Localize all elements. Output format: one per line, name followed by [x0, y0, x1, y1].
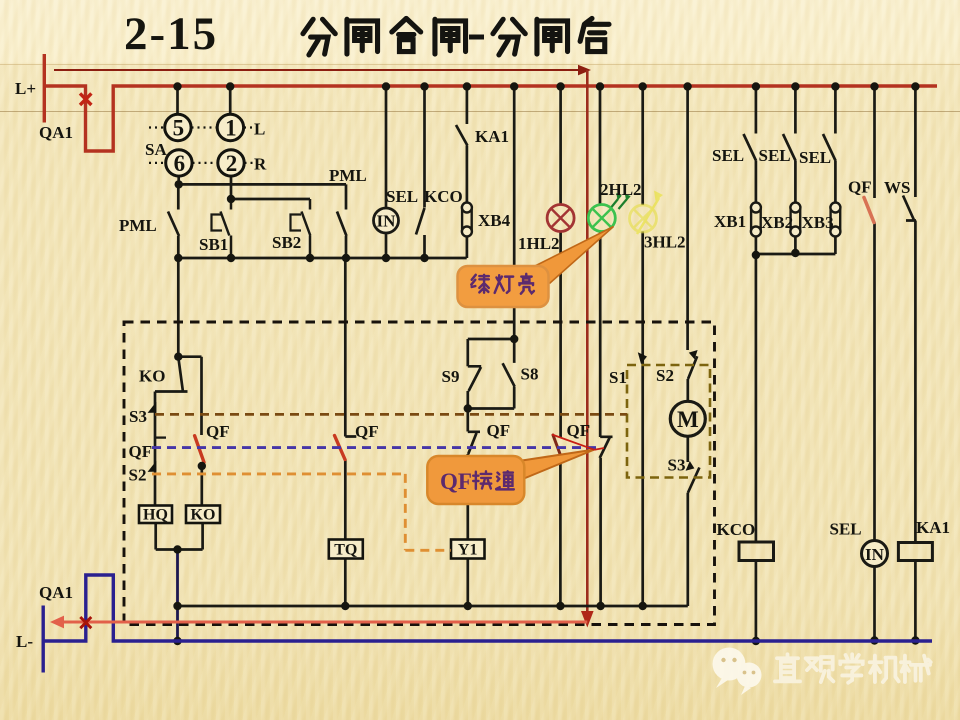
svg-text:QF: QF	[206, 422, 230, 441]
svg-text:S8: S8	[521, 365, 539, 384]
svg-text:KO: KO	[191, 507, 216, 524]
svg-text:SEL: SEL	[799, 148, 831, 167]
svg-text:SB1: SB1	[199, 235, 228, 254]
svg-text:WS: WS	[884, 178, 910, 197]
svg-text:KCO: KCO	[424, 187, 463, 206]
svg-text:PML: PML	[119, 216, 157, 235]
svg-text:S3: S3	[129, 407, 147, 426]
svg-text:QF: QF	[355, 422, 379, 441]
svg-text:XB4: XB4	[478, 211, 511, 230]
svg-text:QA1: QA1	[39, 583, 73, 602]
svg-text:Y1: Y1	[458, 542, 478, 559]
svg-text:6: 6	[174, 151, 186, 176]
svg-text:SB2: SB2	[272, 233, 301, 252]
svg-text:QF: QF	[440, 469, 472, 494]
svg-text:QF: QF	[129, 442, 153, 461]
svg-text:1: 1	[225, 116, 237, 141]
svg-text:XB3: XB3	[802, 213, 834, 232]
svg-text:2-15: 2-15	[124, 8, 218, 60]
svg-text:KA1: KA1	[475, 127, 509, 146]
svg-text:IN: IN	[377, 212, 397, 231]
svg-text:XB2: XB2	[761, 213, 793, 232]
svg-text:QF: QF	[487, 421, 511, 440]
svg-text:2HL2: 2HL2	[600, 180, 642, 199]
svg-text:QF: QF	[567, 421, 591, 440]
svg-text:KCO: KCO	[717, 520, 756, 539]
svg-text:IN: IN	[865, 545, 885, 564]
svg-text:KO: KO	[139, 367, 165, 386]
svg-text:SEL: SEL	[712, 146, 744, 165]
svg-text:5: 5	[173, 116, 185, 141]
svg-text:PML: PML	[329, 166, 367, 185]
svg-text:QF: QF	[848, 178, 872, 197]
svg-text:R: R	[254, 155, 267, 174]
svg-text:S3: S3	[668, 456, 686, 475]
svg-text:3HL2: 3HL2	[644, 233, 686, 252]
svg-text:QA1: QA1	[39, 123, 73, 142]
svg-text:M: M	[677, 407, 699, 432]
svg-text:S2: S2	[129, 466, 147, 485]
svg-text:SEL: SEL	[759, 146, 791, 165]
svg-text:XB1: XB1	[714, 212, 746, 231]
svg-text:L+: L+	[15, 79, 36, 98]
svg-text:S2: S2	[656, 366, 674, 385]
svg-text:2: 2	[226, 151, 238, 176]
svg-text:SEL: SEL	[830, 520, 862, 539]
svg-text:L-: L-	[16, 632, 33, 651]
svg-text:SEL: SEL	[386, 187, 418, 206]
svg-text:L: L	[254, 120, 265, 139]
svg-text:S1: S1	[609, 368, 627, 387]
svg-text:KA1: KA1	[916, 518, 950, 537]
svg-text:TQ: TQ	[334, 542, 357, 559]
svg-text:SA: SA	[145, 140, 167, 159]
svg-text:HQ: HQ	[143, 507, 168, 524]
svg-text:1HL2: 1HL2	[518, 234, 560, 253]
svg-text:S9: S9	[442, 367, 460, 386]
